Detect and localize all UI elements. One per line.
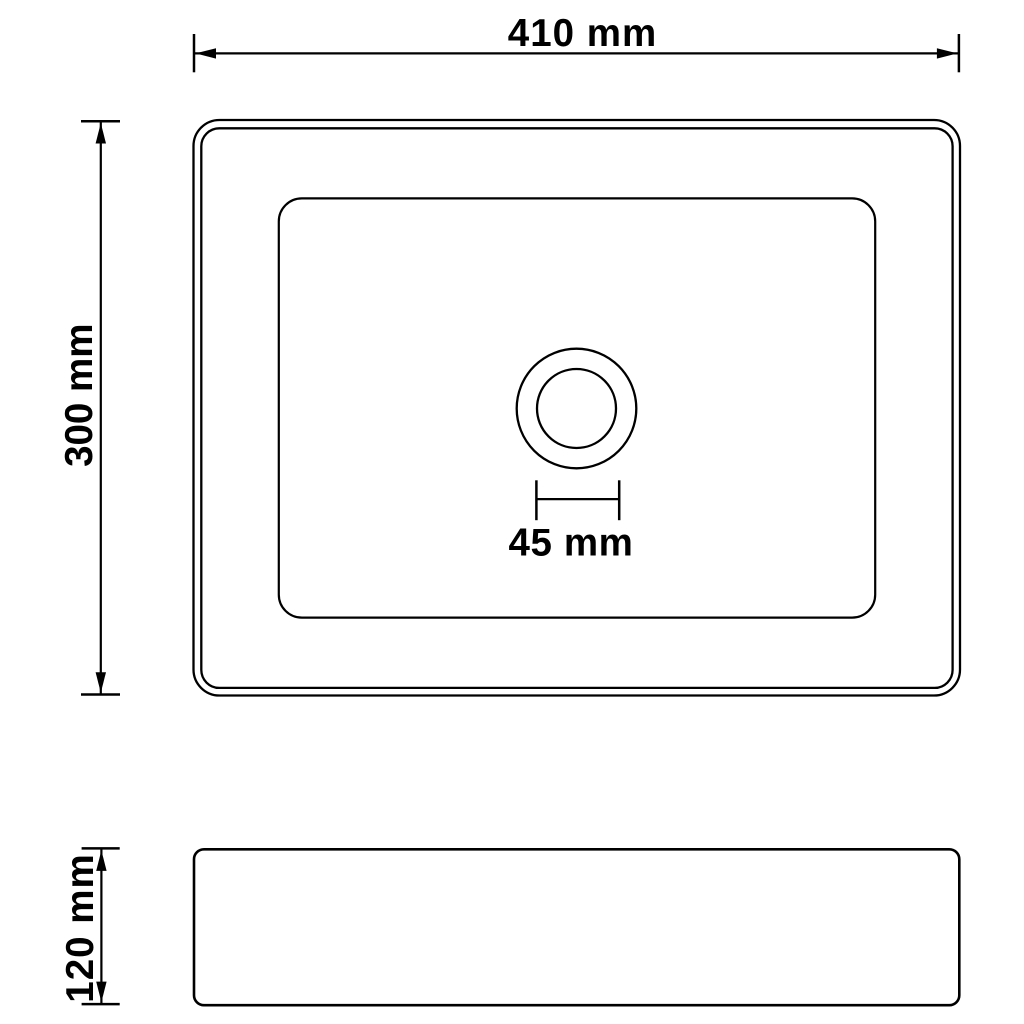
svg-text:300 mm: 300 mm (58, 323, 101, 466)
svg-text:120 mm: 120 mm (59, 853, 102, 1002)
svg-text:45 mm: 45 mm (509, 521, 634, 564)
svg-text:410 mm: 410 mm (508, 12, 657, 55)
